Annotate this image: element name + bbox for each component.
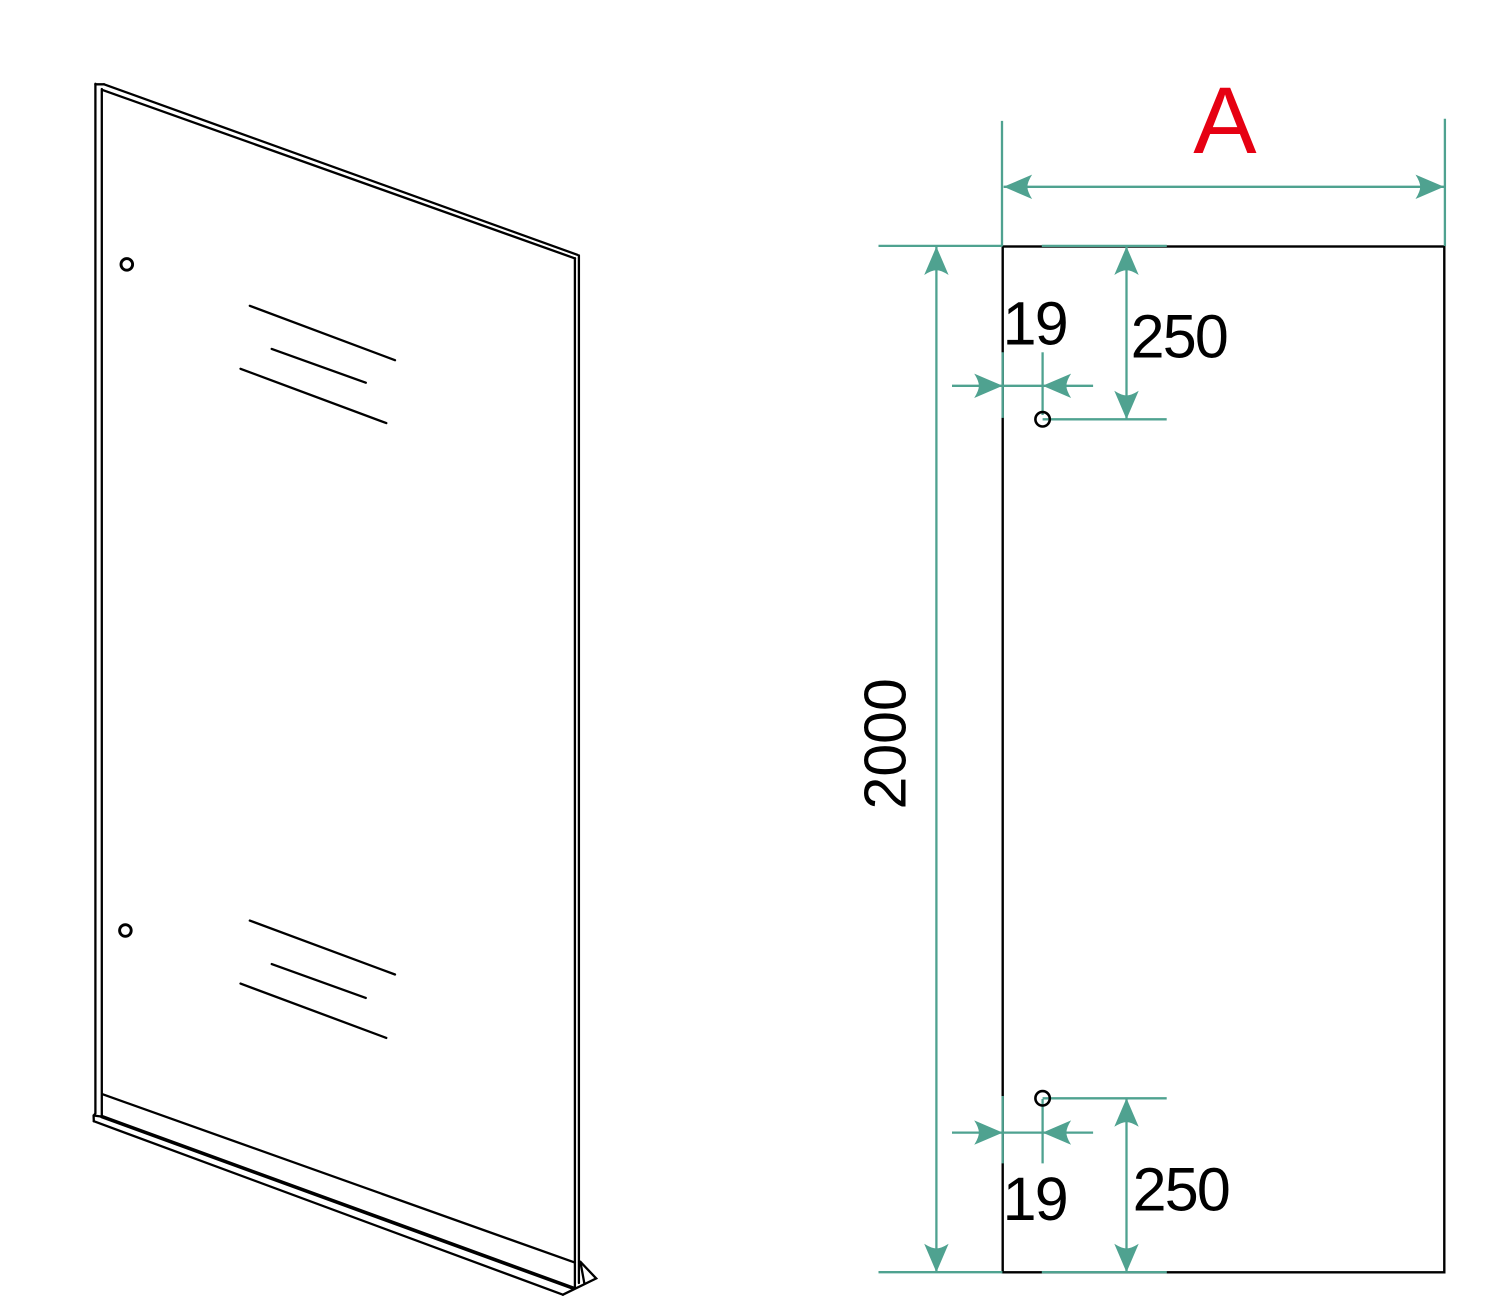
svg-text:19: 19 <box>1003 289 1067 357</box>
svg-text:250: 250 <box>1131 302 1227 370</box>
svg-text:2000: 2000 <box>853 678 919 809</box>
svg-text:250: 250 <box>1133 1155 1229 1223</box>
svg-text:A: A <box>1193 68 1257 174</box>
svg-text:19: 19 <box>1003 1165 1067 1233</box>
